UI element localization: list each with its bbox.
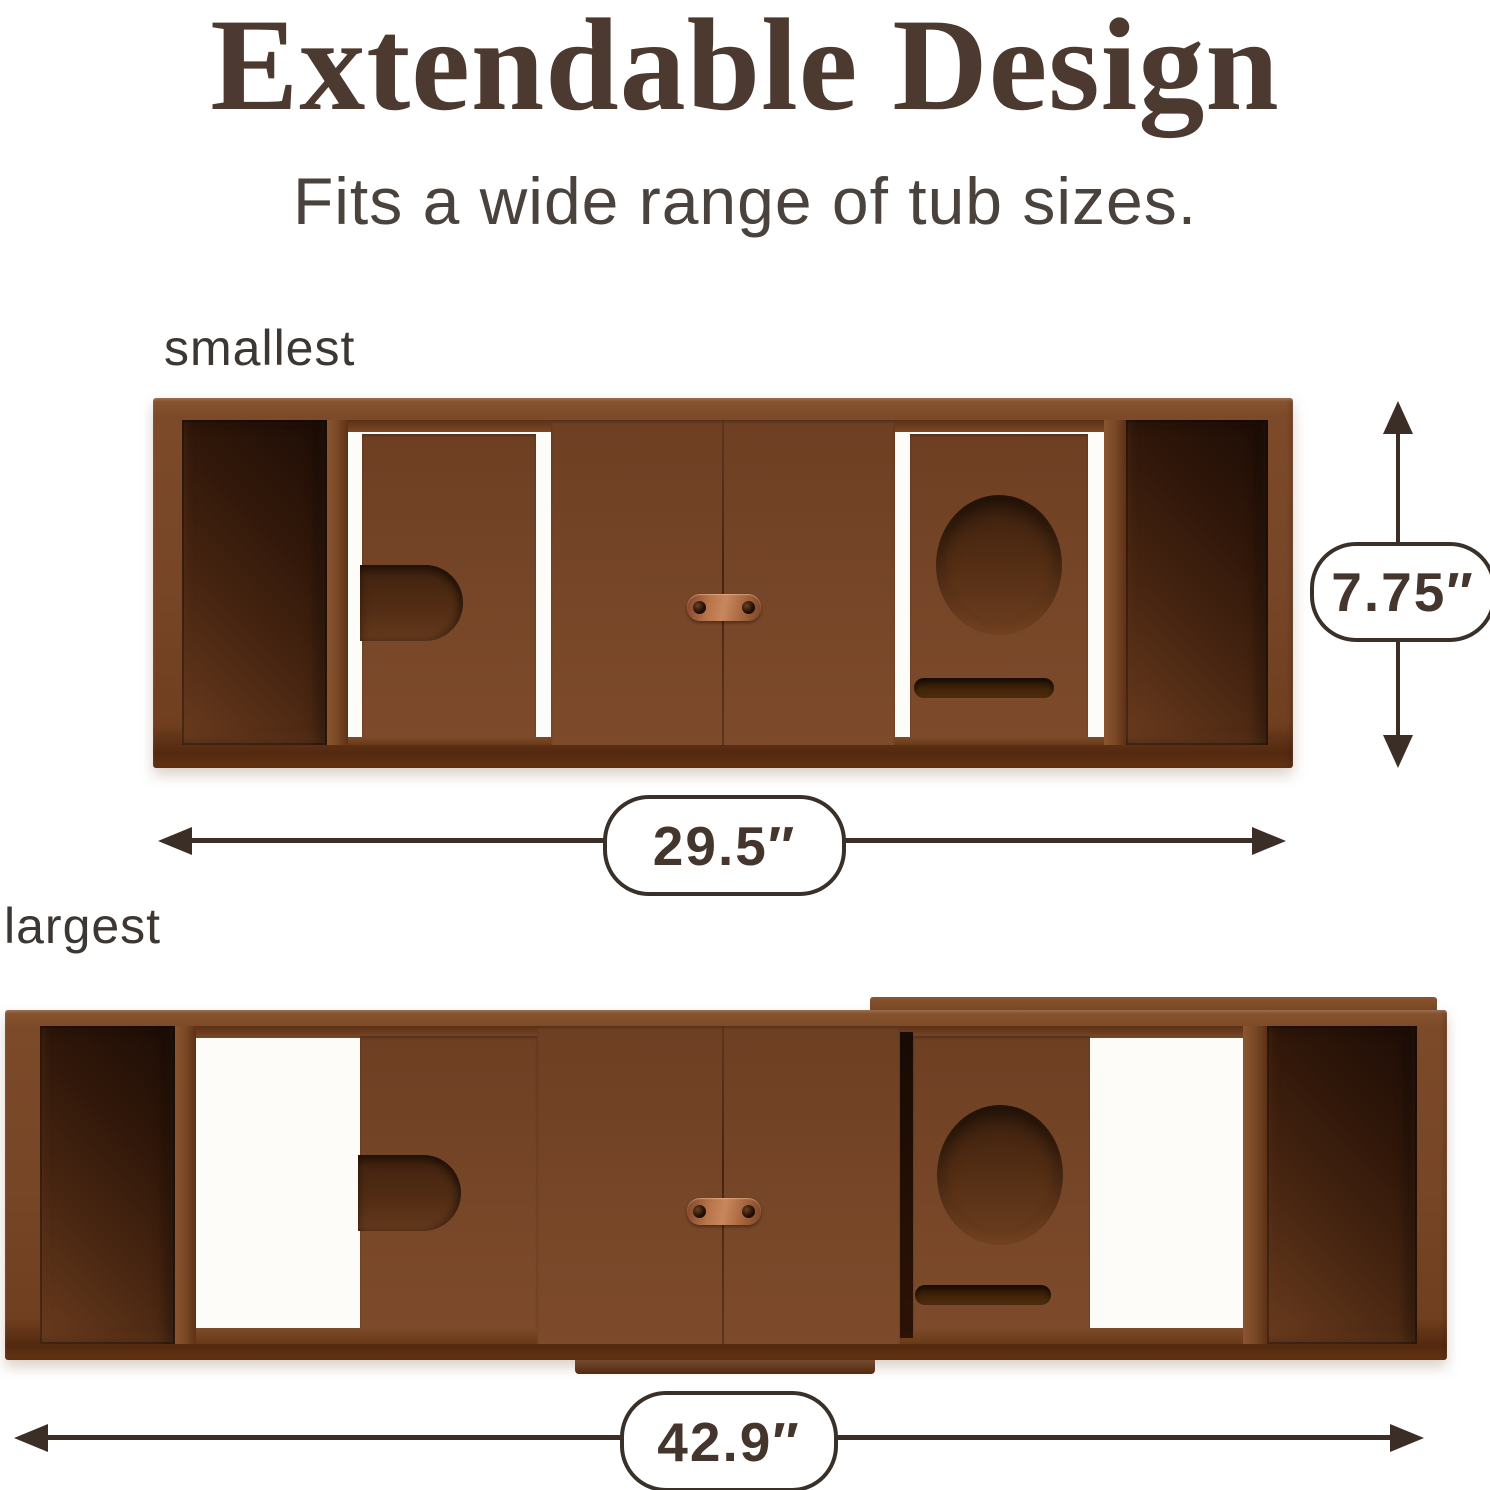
wine-glass-recess	[937, 1105, 1063, 1245]
frame-divider-left	[327, 420, 348, 745]
tray-smallest-deck	[182, 420, 1268, 745]
tray-largest	[5, 1010, 1447, 1360]
extension-gap-left	[196, 1038, 360, 1328]
extension-gap-right	[1090, 1038, 1243, 1328]
tray-smallest	[153, 398, 1293, 768]
panel-seam	[722, 420, 724, 745]
book-holder-panel	[360, 1036, 537, 1328]
left-storage-well	[182, 420, 327, 745]
copper-connector	[687, 1198, 761, 1225]
arrow-right-icon	[1390, 1424, 1424, 1452]
wine-glass-panel	[910, 434, 1088, 737]
arrow-up-icon	[1383, 401, 1413, 434]
arrow-left-icon	[158, 827, 192, 855]
panel-shadow-slit	[900, 1032, 913, 1338]
height-badge: 7.75″	[1310, 542, 1490, 642]
page-subtitle: Fits a wide range of tub sizes.	[0, 160, 1490, 243]
slide-gap	[1088, 432, 1104, 737]
copper-connector	[687, 594, 761, 621]
arrow-right-icon	[1252, 827, 1286, 855]
left-storage-well	[40, 1026, 175, 1344]
screw-icon	[693, 601, 706, 614]
screw-icon	[742, 601, 755, 614]
phone-slot	[914, 678, 1054, 698]
screw-icon	[693, 1205, 706, 1218]
frame-divider-right	[1243, 1026, 1267, 1344]
frame-divider-right	[1104, 420, 1126, 745]
center-sliding-panel	[537, 1026, 900, 1344]
width-badge-smallest: 29.5″	[603, 795, 846, 896]
variant-label-smallest: smallest	[164, 323, 355, 373]
right-storage-well	[1126, 420, 1268, 745]
center-sliding-panel	[551, 420, 895, 745]
book-holder-notch	[360, 565, 463, 641]
frame-divider-left	[175, 1026, 196, 1344]
wine-glass-recess	[936, 495, 1062, 635]
width-badge-largest: 42.9″	[620, 1391, 838, 1490]
book-holder-panel	[362, 434, 536, 737]
book-holder-notch	[358, 1155, 461, 1231]
right-storage-well	[1267, 1026, 1417, 1344]
slide-gap	[536, 432, 551, 737]
arrow-left-icon	[14, 1424, 48, 1452]
arrow-down-icon	[1383, 735, 1413, 768]
tray-largest-deck	[40, 1026, 1417, 1344]
screw-icon	[742, 1205, 755, 1218]
variant-label-largest: largest	[4, 901, 161, 951]
page-title: Extendable Design	[0, 0, 1490, 137]
phone-slot	[915, 1285, 1051, 1305]
slide-gap	[895, 432, 910, 737]
wine-glass-panel	[913, 1036, 1090, 1328]
panel-seam	[722, 1026, 724, 1344]
product-infographic: Extendable Design Fits a wide range of t…	[0, 0, 1490, 1490]
